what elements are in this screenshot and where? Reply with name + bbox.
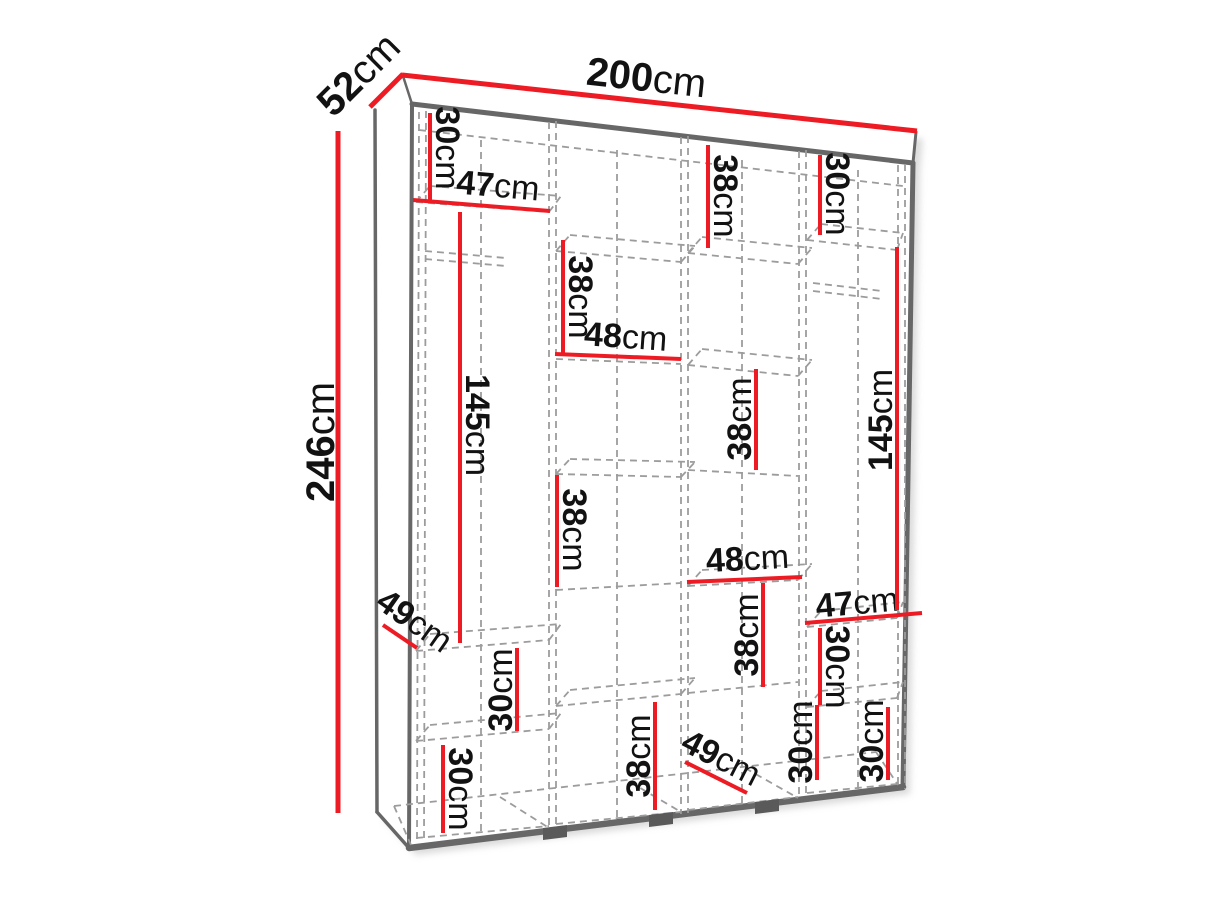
- dimension-value: 38: [555, 488, 593, 526]
- dimension-label-mid30_col4: 30cm: [818, 625, 856, 708]
- dimension-label-top38_col3: 38cm: [706, 154, 744, 237]
- dimension-unit: cm: [458, 431, 496, 476]
- dimension-label-bot30_right: 30cm: [853, 699, 891, 782]
- dimension-unit: cm: [782, 700, 820, 745]
- dimension-value: 38: [728, 639, 766, 677]
- dimension-label-top30_col4: 30cm: [818, 152, 856, 235]
- dimension-value: 145: [458, 374, 496, 431]
- dimension-value: 38: [706, 154, 744, 192]
- dimension-unit: cm: [441, 785, 479, 830]
- dimension-label-mid47_col4: 47cm: [814, 580, 900, 625]
- dimension-value: 47: [455, 163, 496, 204]
- dimension-label-mid38_col3_low: 38cm: [728, 593, 766, 676]
- dimension-unit: cm: [853, 699, 891, 744]
- dimension-label-top48_col2: 48cm: [583, 315, 669, 359]
- dimension-unit: cm: [852, 580, 900, 622]
- wardrobe-dimension-diagram: 52cm200cm246cm30cm47cm38cm48cm38cm30cm14…: [0, 0, 1214, 911]
- dimension-unit: cm: [862, 369, 900, 414]
- dimension-unit: cm: [728, 593, 766, 638]
- dimension-value: 48: [583, 315, 623, 356]
- dimension-value: 38: [561, 255, 599, 293]
- diagram-canvas: 52cm200cm246cm30cm47cm38cm48cm38cm30cm14…: [0, 0, 1214, 911]
- dimension-label-height_246: 246cm: [299, 382, 343, 502]
- dimension-value: 30: [782, 746, 820, 784]
- dimension-unit: cm: [706, 192, 744, 237]
- dimension-label-bot30_col4: 30cm: [782, 700, 820, 783]
- dimension-label-mid145_col4: 145cm: [862, 369, 900, 471]
- dimension-label-mid30_col1: 30cm: [482, 648, 520, 731]
- dimension-label-top47_col1: 47cm: [455, 163, 541, 208]
- dimension-value: 30: [818, 152, 856, 190]
- dimension-unit: cm: [818, 190, 856, 235]
- dimension-value: 246: [299, 435, 343, 502]
- dimension-label-bot30_col1: 30cm: [441, 747, 479, 830]
- dimension-label-mid48_col3: 48cm: [705, 538, 790, 580]
- dimension-unit: cm: [621, 318, 669, 359]
- dimension-label-bot38_col2: 38cm: [620, 714, 658, 797]
- dimension-value: 47: [814, 584, 855, 625]
- dimension-unit: cm: [299, 382, 343, 435]
- dimension-label-mid38_col3_up: 38cm: [721, 377, 759, 460]
- dimension-value: 30: [441, 747, 479, 785]
- dimension-value: 30: [853, 745, 891, 783]
- dimension-value: 30: [428, 106, 466, 144]
- dimension-value: 145: [862, 414, 900, 471]
- dimension-value: 38: [620, 760, 658, 798]
- dimension-label-mid38_col2: 38cm: [555, 488, 593, 571]
- dimension-value: 48: [705, 540, 745, 580]
- dimension-value: 38: [721, 423, 759, 461]
- dimension-unit: cm: [482, 648, 520, 693]
- dimension-unit: cm: [651, 57, 709, 107]
- dimension-unit: cm: [555, 526, 593, 571]
- dimension-unit: cm: [721, 377, 759, 422]
- dimension-label-mid145_col1: 145cm: [458, 374, 496, 476]
- dimension-unit: cm: [620, 714, 658, 759]
- dimension-unit: cm: [818, 663, 856, 708]
- dimension-unit: cm: [743, 538, 790, 578]
- side-outer-edge: [375, 110, 377, 812]
- dimension-unit: cm: [493, 167, 541, 209]
- dimension-value: 30: [818, 625, 856, 663]
- dimension-value: 200: [584, 50, 655, 101]
- dimension-value: 30: [482, 694, 520, 732]
